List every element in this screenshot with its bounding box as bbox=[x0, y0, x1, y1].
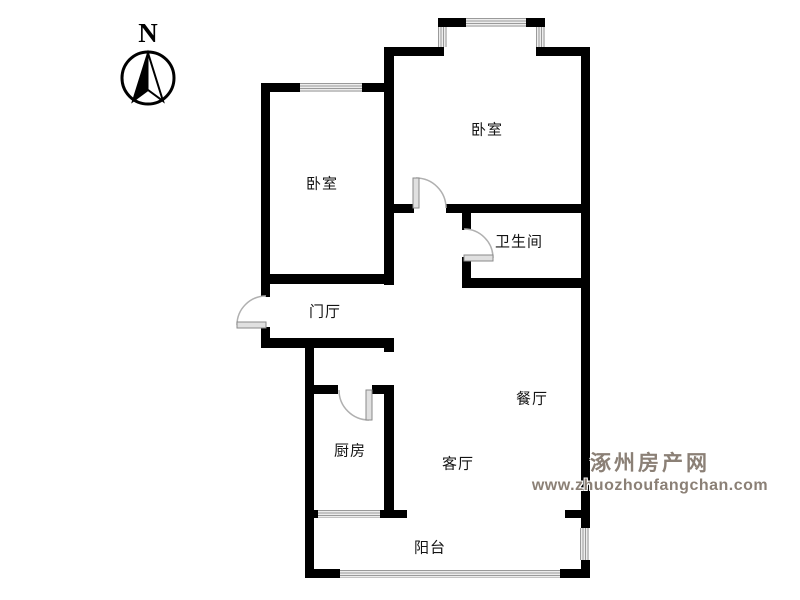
watermark-site-url: www.zhuozhoufangchan.com bbox=[525, 477, 775, 496]
room-label-bedroom-top: 卧室 bbox=[471, 119, 503, 140]
wall bbox=[384, 338, 394, 352]
wall bbox=[446, 204, 581, 213]
wall bbox=[314, 385, 338, 394]
room-label-living: 客厅 bbox=[442, 453, 474, 474]
room-label-bathroom: 卫生间 bbox=[495, 231, 543, 252]
window-bedroom-left bbox=[300, 83, 362, 92]
window-balcony-bottom bbox=[340, 570, 560, 578]
watermark: 涿州房产网 www.zhuozhoufangchan.com bbox=[525, 452, 775, 496]
wall bbox=[438, 18, 466, 27]
north-arrow-icon bbox=[118, 48, 178, 108]
bedroom-door bbox=[413, 178, 446, 208]
wall bbox=[261, 83, 270, 297]
window-balcony-right bbox=[580, 528, 589, 560]
kitchen-door bbox=[339, 390, 372, 420]
wall bbox=[261, 338, 394, 348]
wall bbox=[462, 213, 471, 230]
wall bbox=[261, 274, 394, 284]
room-label-balcony: 阳台 bbox=[414, 537, 446, 558]
wall bbox=[380, 510, 407, 518]
room-label-kitchen: 厨房 bbox=[334, 440, 366, 461]
wall bbox=[305, 510, 318, 518]
wall bbox=[581, 560, 590, 578]
wall bbox=[305, 348, 314, 578]
compass: N bbox=[118, 20, 178, 113]
watermark-site-name: 涿州房产网 bbox=[525, 452, 775, 477]
room-label-dining: 餐厅 bbox=[516, 388, 548, 409]
wall bbox=[362, 83, 394, 92]
floor-plan: N bbox=[0, 0, 800, 600]
window-kitchen bbox=[318, 510, 380, 518]
wall bbox=[384, 385, 394, 518]
room-label-bedroom-left: 卧室 bbox=[306, 173, 338, 194]
room-label-entry-hall: 门厅 bbox=[309, 301, 341, 322]
compass-north-label: N bbox=[118, 20, 178, 47]
window-bay-top bbox=[466, 18, 526, 27]
wall bbox=[565, 510, 590, 518]
wall bbox=[526, 18, 545, 27]
window-bay-left bbox=[438, 27, 447, 47]
wall bbox=[394, 204, 414, 213]
entrance-door bbox=[237, 296, 266, 328]
window-bay-right bbox=[536, 27, 545, 47]
wall bbox=[462, 278, 581, 288]
wall bbox=[305, 569, 340, 578]
